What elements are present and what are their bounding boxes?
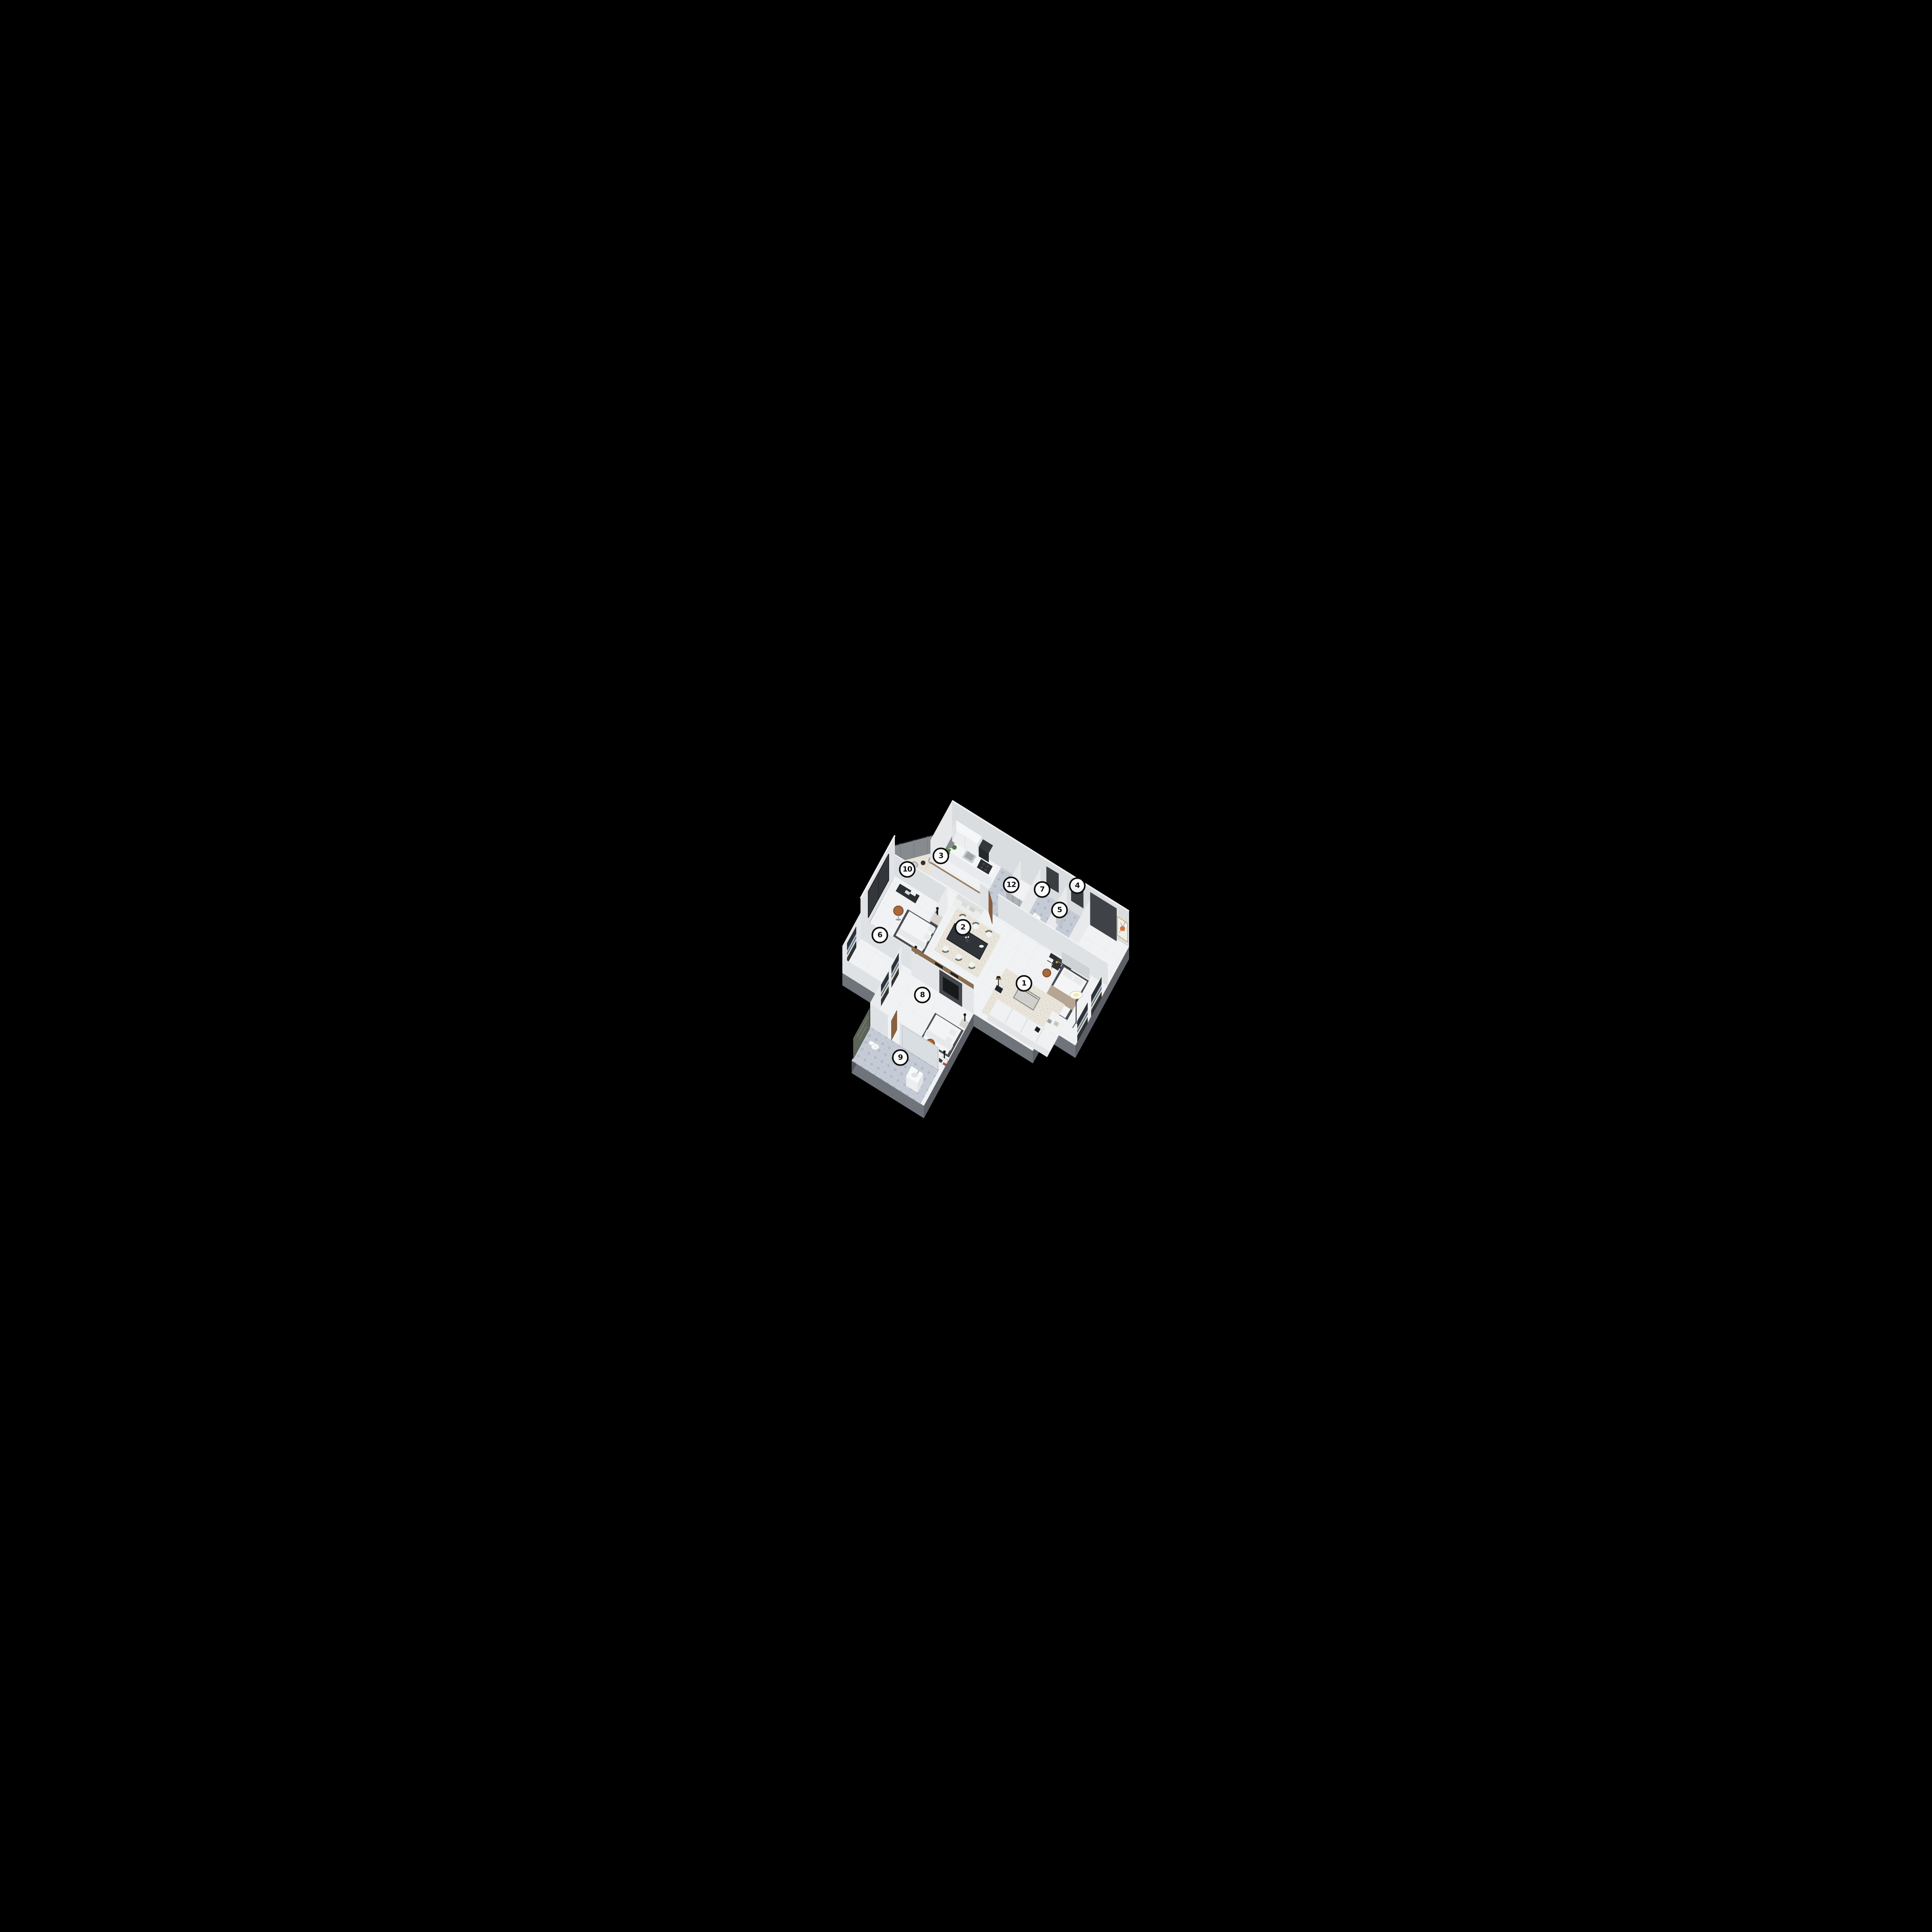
leather-chair (1043, 969, 1051, 977)
balcony-table (921, 861, 925, 865)
egg-chair (894, 906, 903, 915)
floorplan-render (773, 773, 1159, 1159)
counter-plant (952, 845, 957, 850)
floorplan-stage: 1 2 3 4 5 6 7 8 9 10 12 (773, 773, 1159, 1159)
